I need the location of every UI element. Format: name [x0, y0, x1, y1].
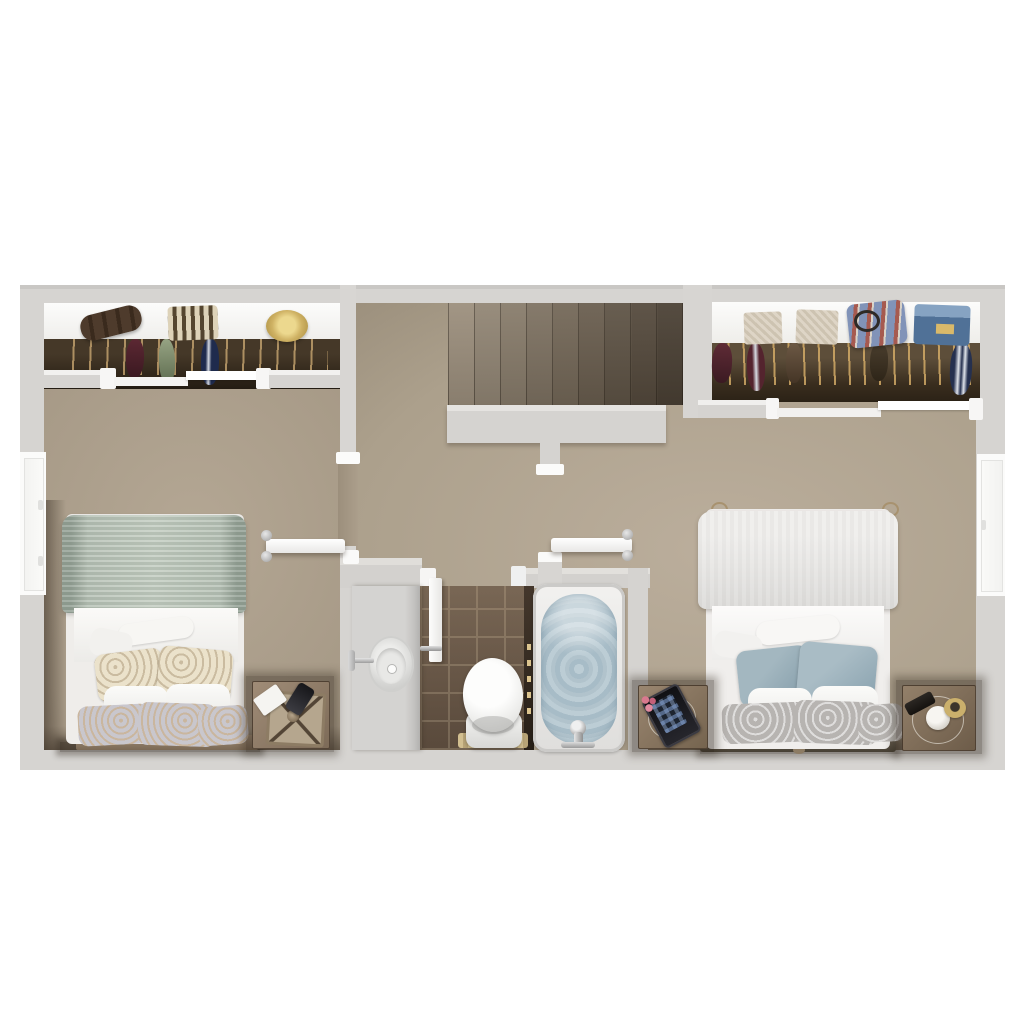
closet-left-front-wall-b [269, 370, 340, 388]
bed-right-duvet [698, 511, 898, 609]
shelf-towel-b [795, 309, 838, 344]
closet-right-post-b [969, 398, 983, 420]
sink-drain [387, 664, 397, 674]
bath-wall-cap [343, 550, 359, 564]
flower-pink [640, 694, 658, 714]
shelf-bag-handle [854, 310, 880, 332]
staircase [448, 303, 684, 405]
bath-divider-hooks [527, 638, 531, 714]
closet-right-slider-front [878, 401, 972, 410]
door-left-hinge-a [261, 530, 272, 541]
bath-door-handle [420, 646, 442, 651]
door-right-hinge-a [622, 529, 633, 540]
toilet-seat-seam [472, 716, 514, 734]
sink-faucet-handle [348, 650, 355, 671]
window-west-handle-a [38, 500, 43, 510]
door-right-hinge-b [622, 550, 633, 561]
door-bedroom-left [266, 539, 345, 553]
bed-left-blanket-sage [62, 515, 246, 613]
shelf-basket-striped [167, 305, 218, 341]
closet-left-slider-front [186, 371, 260, 380]
door-bedroom-right [551, 538, 632, 552]
landing-stub-cap [536, 464, 564, 475]
stairs-closet-divider-wall [683, 285, 712, 418]
closet-right-front-wall-a [698, 400, 768, 418]
floor-plan [0, 0, 1024, 1024]
stairs-landing-wall [447, 405, 666, 443]
closet-right-slider-rear [777, 408, 881, 417]
shelf-box-label [936, 324, 954, 335]
hall-west-wall-cap [336, 452, 360, 464]
pillow-patterned-c [197, 704, 250, 746]
doorway-threshold-left [338, 455, 358, 550]
closet-left-front-wall-a [44, 370, 104, 388]
hall-west-wall [340, 285, 356, 459]
gold-dish [944, 698, 966, 718]
shelf-towel-a [743, 311, 782, 344]
closet-left-slider-rear [114, 377, 188, 386]
window-west-glass [24, 458, 44, 591]
door-left-hinge-b [261, 551, 272, 562]
sink-faucet-spout [352, 658, 374, 663]
window-east-handle [981, 520, 986, 530]
tub-faucet-handles [561, 742, 595, 748]
garment-brown-right [786, 343, 802, 383]
window-west-handle-b [38, 556, 43, 566]
shelf-hat-gold [266, 310, 308, 342]
